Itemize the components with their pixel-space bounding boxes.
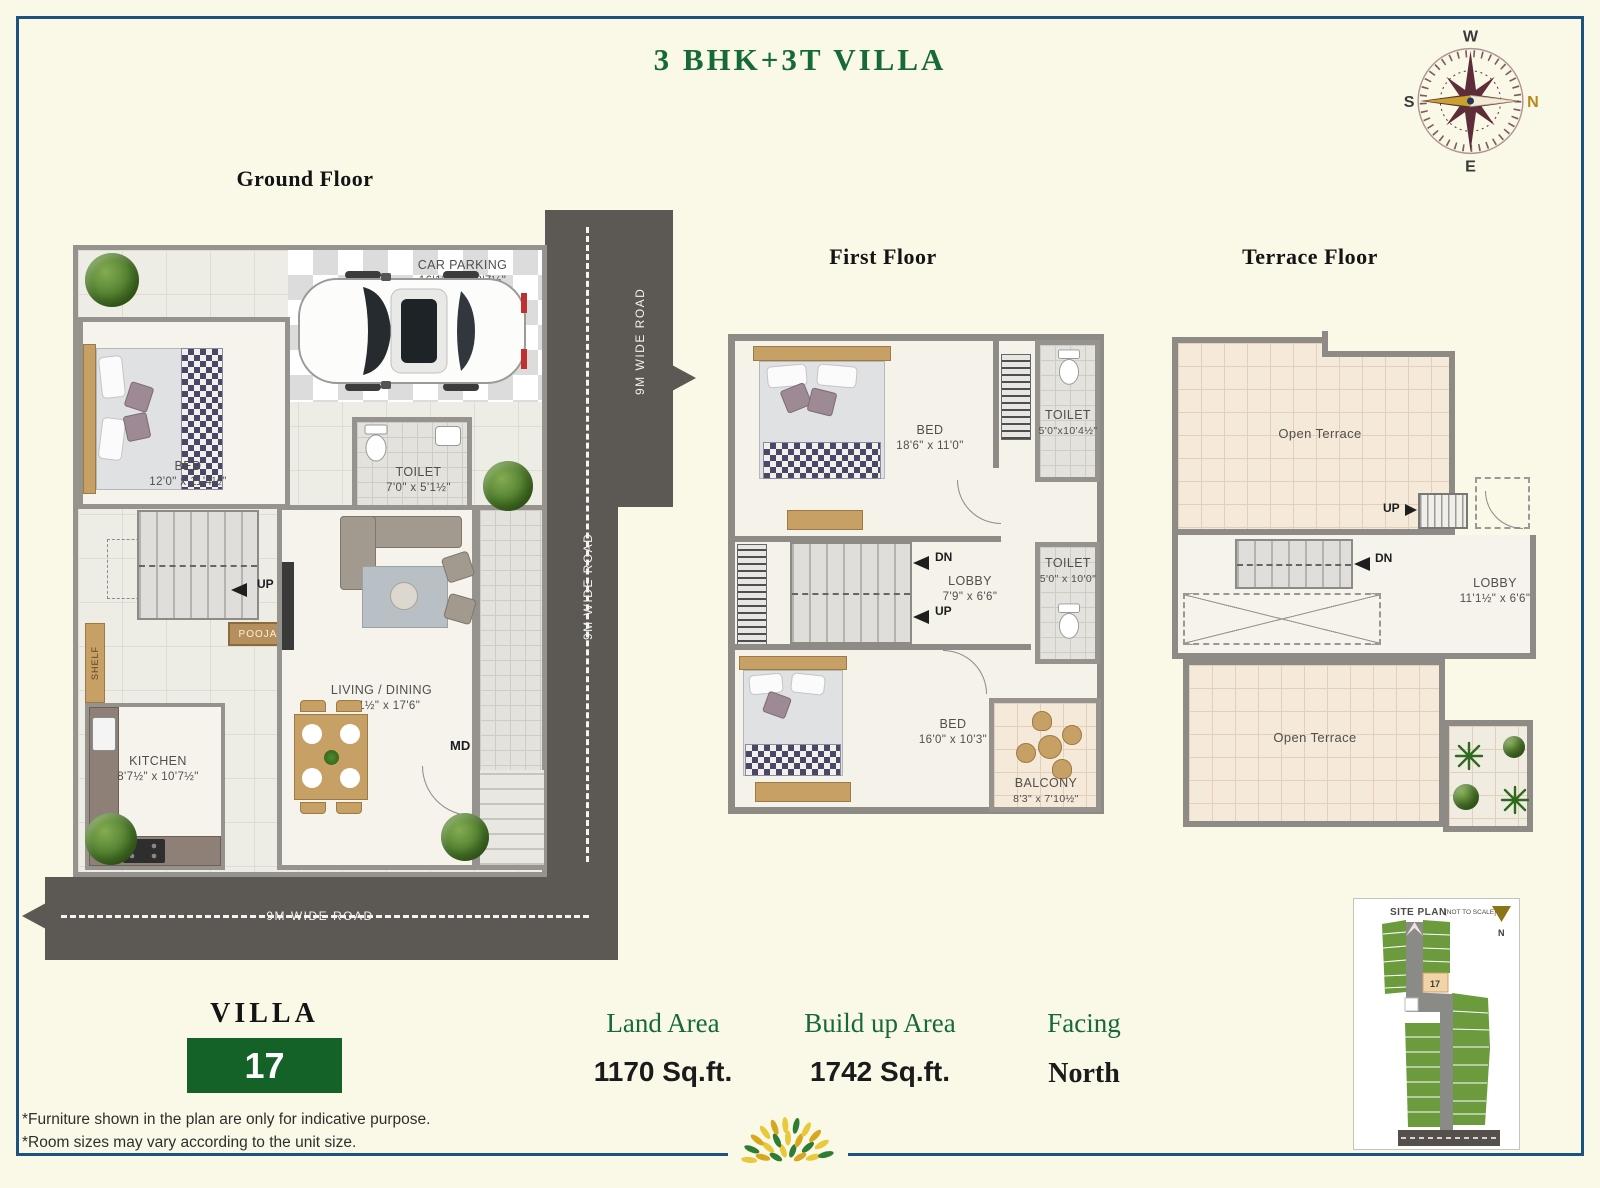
first-floor-heading: First Floor — [768, 244, 998, 270]
bedroom-ground-label: BED 12'0" x 11'4½" — [123, 458, 253, 490]
site-north-label: N — [1498, 928, 1505, 938]
palm-plant-icon — [1453, 740, 1485, 772]
road-label-right-bottom: 9M WIDE ROAD — [581, 505, 595, 640]
stair-void-dashed — [1183, 593, 1381, 645]
site-main-road — [1398, 1130, 1500, 1146]
land-area-value: 1170 Sq.ft. — [563, 1056, 763, 1088]
living-dining: LIVING / DINING 11'1½" x 17'6" MD — [277, 505, 477, 870]
villa-label: VILLA — [187, 998, 342, 1030]
balcony: BALCONY 8'3" x 7'10½" — [989, 698, 1101, 812]
shelf: SHELF — [85, 623, 105, 703]
shelf-label: SHELF — [90, 624, 100, 702]
road-label-right-top: 9M WIDE ROAD — [633, 260, 647, 395]
open-terrace-top-label: Open Terrace — [1255, 425, 1385, 443]
entry-steps — [480, 770, 544, 865]
palm-plant-icon — [1499, 784, 1531, 816]
compass-e: E — [1465, 157, 1476, 175]
bed1-blanket — [763, 442, 881, 479]
shrub — [1453, 784, 1479, 810]
bed1-headboard — [753, 346, 891, 361]
villa-number-badge: 17 — [187, 1038, 342, 1093]
open-terrace-bottom-label: Open Terrace — [1250, 729, 1380, 747]
coffee-table — [390, 582, 418, 610]
washbasin-icon — [435, 426, 461, 446]
balcony-label: BALCONY 8'3" x 7'10½" — [1000, 775, 1092, 806]
centerpiece-plant — [324, 750, 339, 765]
armchair — [443, 593, 477, 626]
dn-arrow-icon — [913, 556, 929, 570]
stairs-midline — [1237, 564, 1351, 566]
road-label-bottom: 9M WIDE ROAD — [245, 909, 395, 923]
tv-unit — [282, 562, 294, 650]
pillow — [790, 672, 826, 695]
tree — [85, 813, 137, 865]
wall — [993, 340, 999, 468]
balcony-table — [1038, 735, 1062, 759]
tree — [85, 253, 139, 307]
stairs-midline — [139, 565, 257, 567]
pillow — [98, 417, 127, 462]
dining-set — [288, 700, 374, 816]
stairs-up-label: UP — [935, 604, 952, 618]
terrace-dn-label: DN — [1375, 551, 1392, 565]
toilet2: TOILET 5'0" x 10'0" — [1035, 542, 1100, 664]
bed-headboard — [83, 344, 96, 494]
border-right — [1581, 16, 1584, 1156]
car-icon — [293, 265, 531, 397]
cushion — [123, 412, 152, 442]
border-bottom-right — [848, 1153, 1584, 1156]
ground-floor-plan: 9M WIDE ROAD 9M WIDE ROAD 9M WIDE ROAD C… — [45, 205, 695, 965]
tree — [483, 461, 533, 511]
stairs-first — [790, 542, 912, 644]
first-floor-plan: BED 18'6" x 11'0" TOILET 5'0"x10'4½" DN … — [725, 330, 1107, 817]
stairs-terrace — [1235, 539, 1353, 589]
lobby-terrace-label: LOBBY 11'1½" x 6'6" — [1435, 575, 1555, 607]
brand-leaf-logo — [732, 1106, 844, 1166]
dresser — [755, 782, 851, 802]
site-plan: SITE PLAN [NOT TO SCALE] N 17 — [1353, 898, 1520, 1150]
toilet-ground: TOILET 7'0" x 5'1½" — [352, 417, 472, 515]
toilet1: TOILET 5'0"x10'4½" — [1035, 340, 1100, 482]
pillow — [98, 355, 126, 399]
shrub — [1503, 736, 1525, 758]
wall — [735, 644, 1031, 650]
terrace-up-stairs — [1418, 493, 1468, 529]
up-arrow-icon — [913, 610, 929, 624]
up-arrow-icon — [1405, 504, 1417, 516]
lobby-first-label: LOBBY 7'9" x 6'6" — [915, 573, 1025, 605]
compass-rose: W S N E — [1398, 26, 1543, 176]
terrace-up-label: UP — [1383, 501, 1400, 515]
build-up-area-label: Build up Area — [780, 1008, 980, 1039]
balcony-chair — [1062, 725, 1082, 745]
logo-petals — [741, 1117, 834, 1164]
dining-chair — [336, 700, 362, 712]
bed2-blanket — [745, 744, 841, 776]
plate — [340, 768, 360, 788]
sink-icon — [92, 717, 116, 751]
toilet-icon — [1054, 603, 1084, 643]
shaft-hatch — [1001, 354, 1031, 440]
dining-chair — [300, 802, 326, 814]
compass-needle-gold — [1424, 95, 1470, 106]
toilet-icon — [1054, 349, 1084, 389]
main-door-label: MD — [450, 738, 470, 753]
disclaimer-line1: *Furniture shown in the plan are only fo… — [22, 1108, 542, 1131]
road-arrow-left-icon — [22, 903, 46, 929]
road-arrow-right-icon — [672, 365, 696, 391]
toilet1-label: TOILET 5'0"x10'4½" — [1032, 407, 1104, 438]
land-area-label: Land Area — [563, 1008, 763, 1039]
terrace-step-notch — [1322, 331, 1455, 357]
stairs-up-label: UP — [257, 577, 274, 591]
kitchen-label: KITCHEN 8'7½" x 10'7½" — [103, 753, 213, 785]
page-title: 3 BHK+3T VILLA — [500, 42, 1100, 78]
bedroom-ground: BED 12'0" x 11'4½" — [78, 317, 290, 509]
dining-chair — [300, 700, 326, 712]
ground-floor-heading: Ground Floor — [180, 166, 430, 192]
stairs-midline — [792, 593, 910, 595]
stairs-dn-label: DN — [935, 550, 952, 564]
terrace-floor-plan: Open Terrace UP DN LOBBY 11'1½" x 6'6" O… — [1155, 325, 1533, 847]
border-top — [16, 16, 1584, 19]
terrace-floor-heading: Terrace Floor — [1195, 244, 1425, 270]
pillow — [816, 363, 858, 388]
dn-arrow-icon — [1354, 557, 1370, 571]
facing-label: Facing — [1009, 1008, 1159, 1039]
main-door-arc — [422, 766, 472, 816]
site-plot-17-label: 17 — [1430, 979, 1440, 989]
tree — [441, 813, 489, 861]
balcony-chair — [1032, 711, 1052, 731]
border-left — [16, 16, 19, 1156]
dresser — [787, 510, 863, 530]
site-plan-subtitle: [NOT TO SCALE] — [1445, 909, 1496, 916]
dining-chair — [336, 802, 362, 814]
stairs-ground — [137, 510, 259, 620]
stair-window-grill — [737, 544, 767, 650]
build-up-area-value: 1742 Sq.ft. — [780, 1056, 980, 1088]
bed2-headboard — [739, 656, 847, 670]
toilet2-label: TOILET 5'0" x 10'0" — [1032, 555, 1104, 586]
facing-value: North — [1009, 1058, 1159, 1090]
plate — [340, 724, 360, 744]
balcony-chair — [1016, 743, 1036, 763]
compass-s: S — [1404, 93, 1415, 111]
compass-n: N — [1527, 93, 1539, 111]
bed1-label: BED 18'6" x 11'0" — [875, 422, 985, 454]
site-plan-title: SITE PLAN — [1390, 907, 1447, 918]
pooja-label: POOJA — [239, 629, 278, 640]
compass-w: W — [1463, 28, 1479, 46]
planter-deck — [1443, 720, 1533, 832]
toilet-icon — [361, 424, 391, 466]
disclaimer-line2: *Room sizes may vary according to the un… — [22, 1131, 542, 1154]
up-arrow-icon — [231, 583, 247, 597]
toilet-ground-label: TOILET 7'0" x 5'1½" — [371, 464, 466, 496]
plate — [302, 724, 322, 744]
disclaimer: *Furniture shown in the plan are only fo… — [22, 1108, 542, 1155]
pillow — [748, 673, 784, 696]
plate — [302, 768, 322, 788]
road-vertical-wide — [545, 210, 673, 507]
